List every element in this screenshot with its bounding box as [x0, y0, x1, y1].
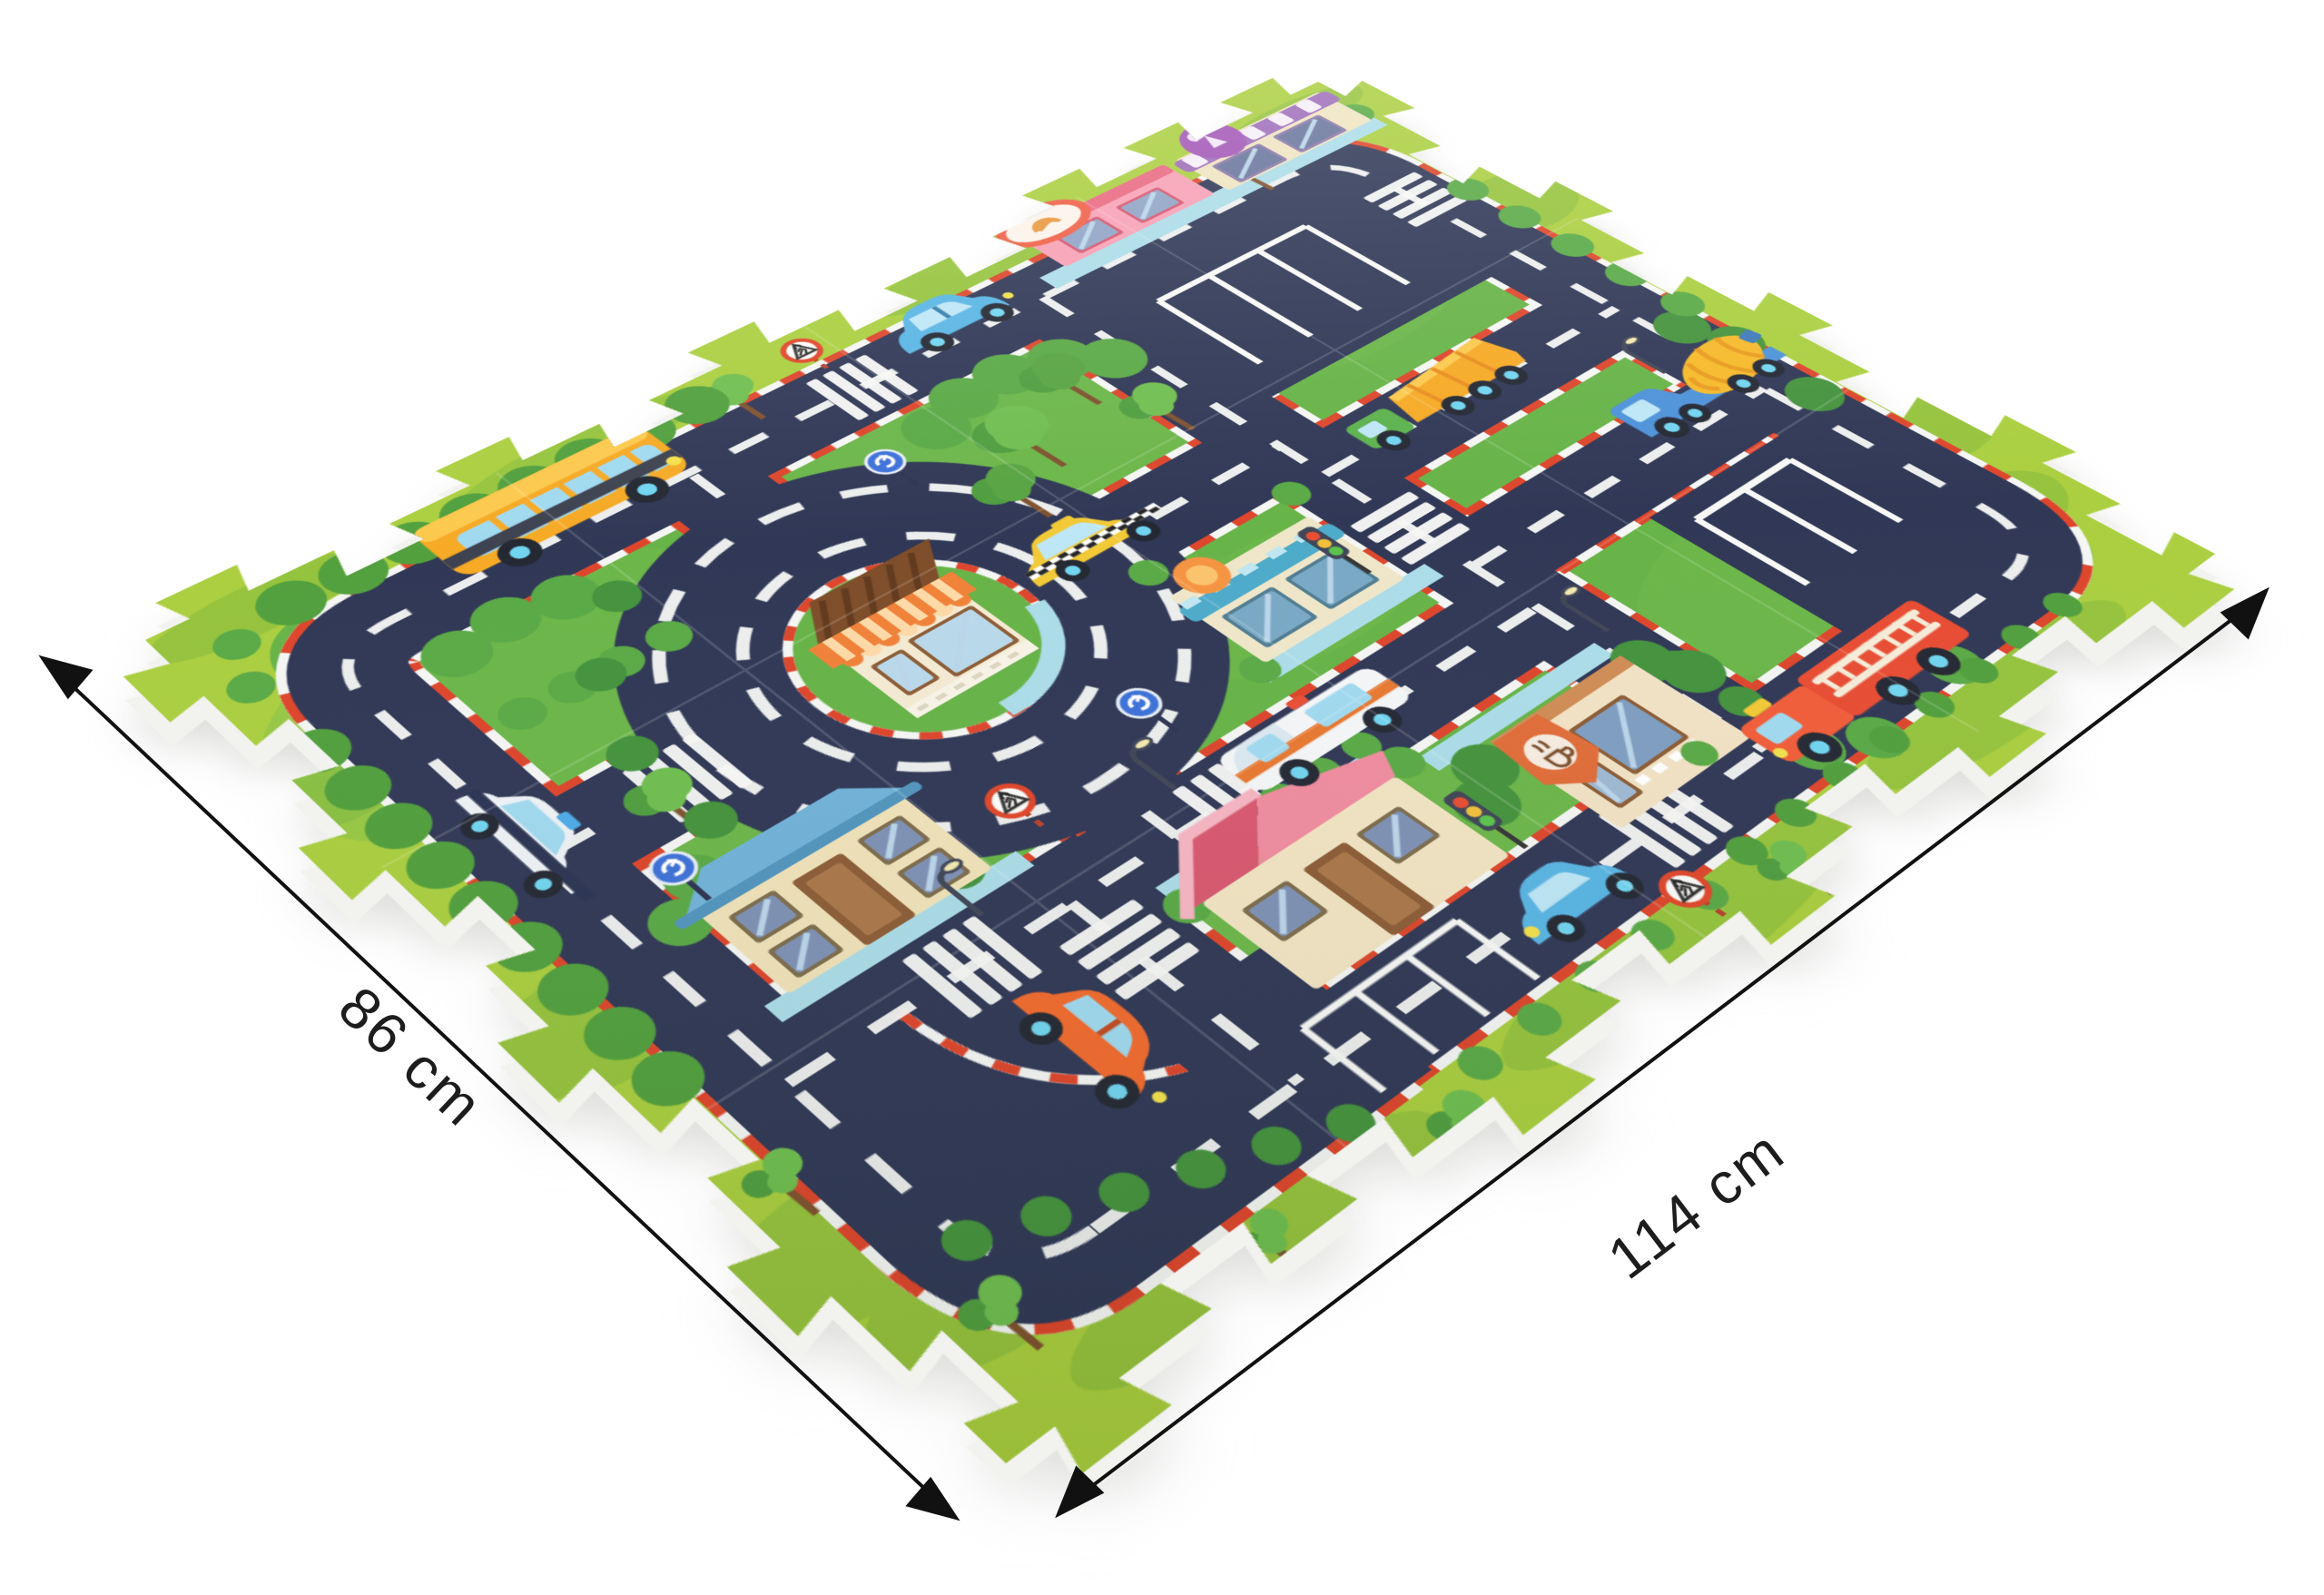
svg-text:86 cm: 86 cm — [327, 974, 497, 1139]
svg-text:114 cm: 114 cm — [1596, 1117, 1797, 1291]
